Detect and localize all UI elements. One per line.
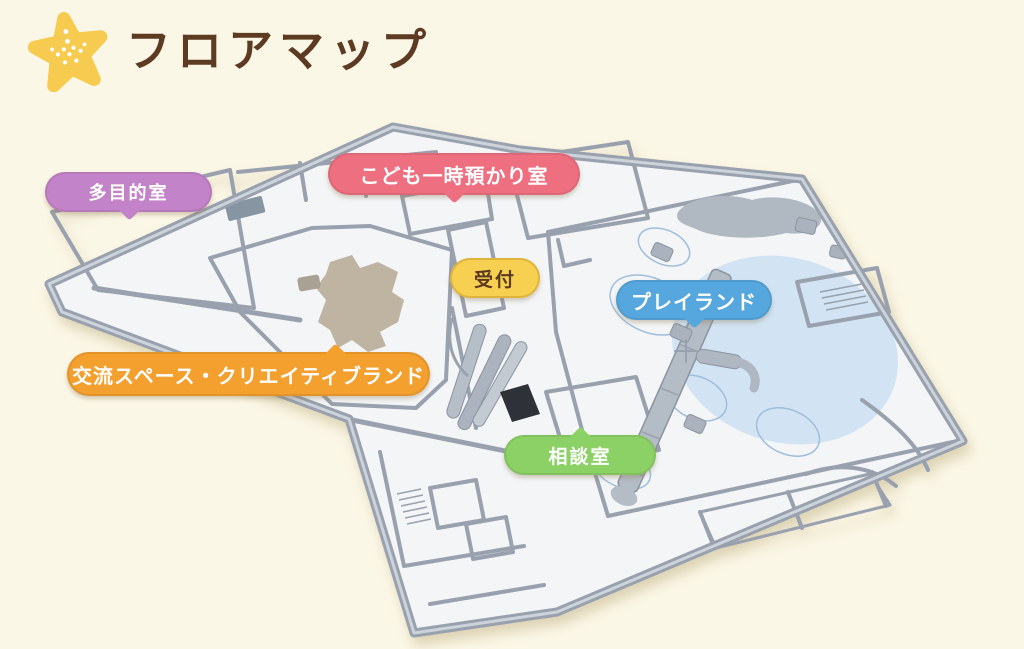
label-reception: 受付 — [450, 258, 540, 298]
label-creative-land: 交流スペース・クリエイティブランド — [67, 352, 430, 396]
label-text: 交流スペース・クリエイティブランド — [72, 360, 425, 389]
label-text: 受付 — [474, 265, 516, 292]
floor-plan-drawing — [0, 0, 1024, 649]
label-text: 相談室 — [548, 442, 611, 469]
label-playland: プレイランド — [616, 280, 772, 320]
floor-map-page: フロアマップ — [0, 0, 1024, 649]
label-text: プレイランド — [631, 286, 757, 315]
label-consultation-room: 相談室 — [504, 435, 656, 475]
label-multipurpose-room: 多目的室 — [45, 172, 212, 212]
label-text: 多目的室 — [89, 179, 169, 205]
label-childcare-room: こども一時預かり室 — [328, 153, 580, 195]
floor-map: 多目的室 こども一時預かり室 受付 プレイランド 交流スペース・クリエイティブラ… — [0, 0, 1024, 649]
label-text: こども一時預かり室 — [360, 160, 549, 189]
